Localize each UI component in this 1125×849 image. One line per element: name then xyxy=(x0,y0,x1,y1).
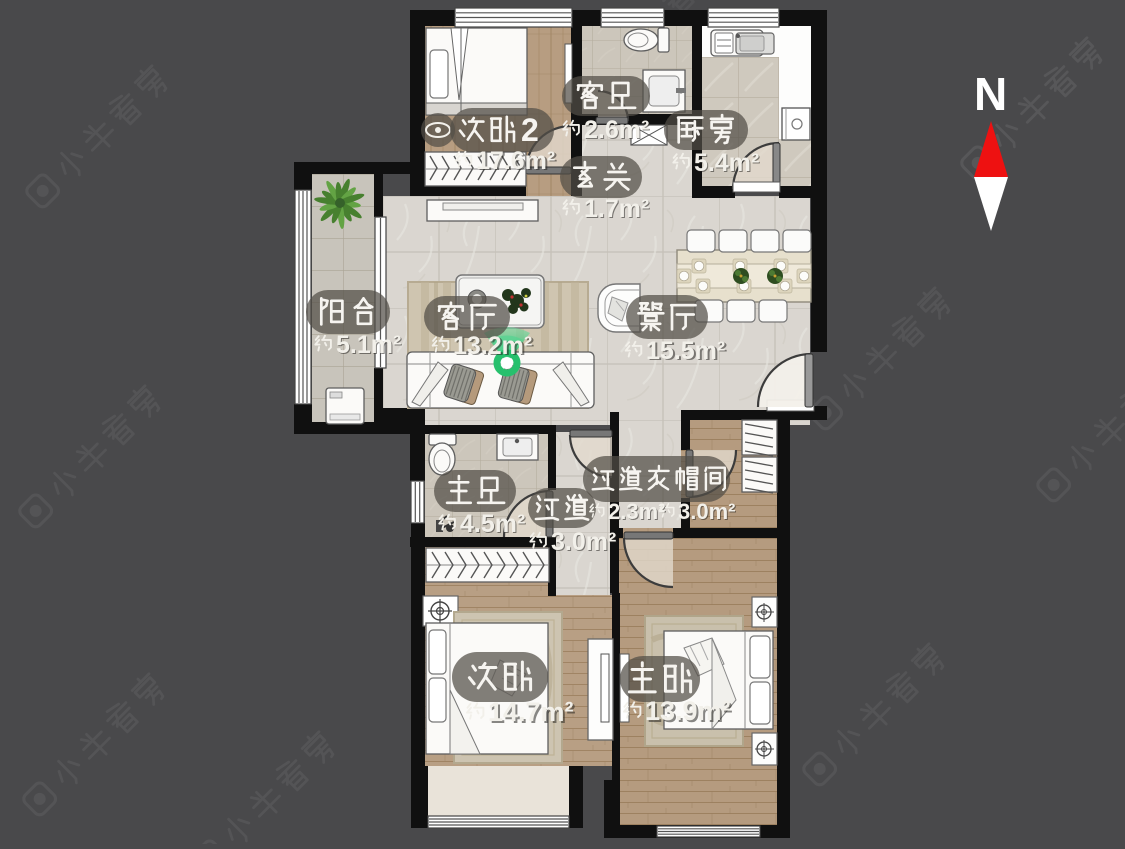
svg-text:3.0m²: 3.0m² xyxy=(678,499,735,524)
svg-text:3.0m²: 3.0m² xyxy=(551,528,616,556)
svg-text:4.5m²: 4.5m² xyxy=(460,510,525,538)
svg-text:13.9m²: 13.9m² xyxy=(645,696,731,726)
svg-text:13.2m²: 13.2m² xyxy=(453,332,532,360)
svg-text:N: N xyxy=(974,68,1007,120)
svg-text:15.5m²: 15.5m² xyxy=(646,337,725,365)
svg-text:5.4m²: 5.4m² xyxy=(694,149,759,177)
svg-text:2.6m²: 2.6m² xyxy=(584,116,649,144)
svg-text:2.3m²: 2.3m² xyxy=(608,499,665,524)
svg-text:14.7m²: 14.7m² xyxy=(488,697,574,727)
svg-text:1.7m²: 1.7m² xyxy=(584,195,649,223)
svg-text:2: 2 xyxy=(521,112,539,148)
svg-text:17.6m²: 17.6m² xyxy=(476,147,555,175)
svg-text:5.1m²: 5.1m² xyxy=(336,331,401,359)
